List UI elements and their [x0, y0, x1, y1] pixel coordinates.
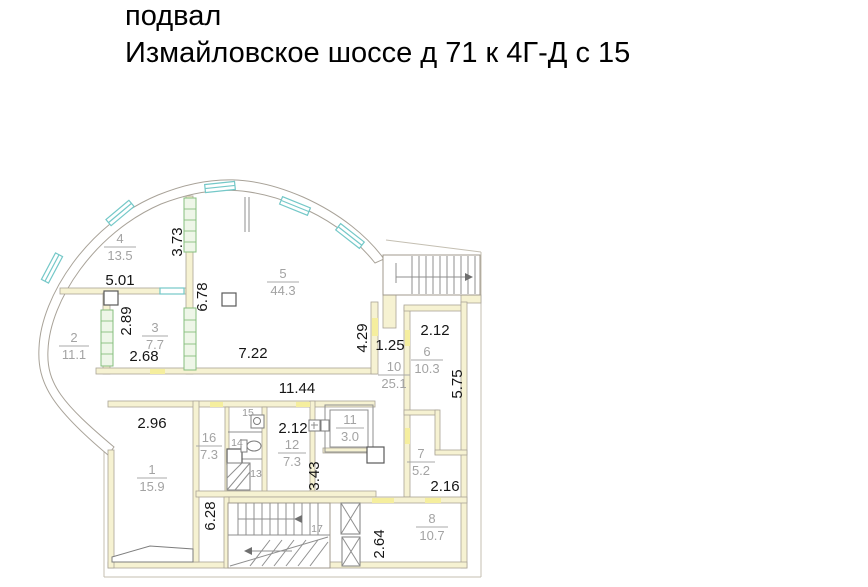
room-11-area: 3.0 — [341, 429, 359, 444]
room-12-number: 12 — [285, 437, 299, 452]
room-8-area: 10.7 — [419, 528, 444, 543]
room-6-area: 10.3 — [414, 361, 439, 376]
room-7-area: 5.2 — [412, 463, 430, 478]
room-5-area: 44.3 — [270, 283, 295, 298]
page: подвал Измайловское шоссе д 71 к 4Г-Д с … — [0, 0, 868, 587]
dim-6-28: 6.28 — [202, 501, 219, 530]
room-17-number: 17 — [311, 523, 323, 535]
dim-5-01: 5.01 — [105, 272, 134, 289]
floor-label: подвал — [125, 0, 630, 35]
dim-7-22: 7.22 — [238, 345, 267, 362]
dim-2-12-top: 2.12 — [420, 322, 449, 339]
room-16-area: 7.3 — [200, 447, 218, 462]
room-16-number: 16 — [202, 430, 216, 445]
curved-outer-wall — [39, 180, 384, 455]
dim-4-29: 4.29 — [354, 323, 371, 352]
dim-6-78: 6.78 — [194, 282, 211, 311]
dim-2-89: 2.89 — [118, 306, 135, 335]
staircase-top — [383, 255, 480, 295]
room-4-number: 4 — [116, 231, 123, 246]
staircase-17 — [228, 503, 330, 568]
dim-1-25: 1.25 — [375, 337, 404, 354]
room-11-number: 11 — [343, 412, 357, 427]
dim-2-68: 2.68 — [129, 348, 158, 365]
room-10-number: 10 — [387, 359, 401, 374]
room-8-number: 8 — [428, 511, 435, 526]
dim-5-75: 5.75 — [449, 369, 466, 398]
dim-3-73: 3.73 — [169, 227, 186, 256]
room-14-number: 14 — [231, 437, 243, 449]
floor-plan-svg: 1 15.9 2 11.1 3 7.7 4 13.5 5 44.3 6 10.3… — [30, 150, 485, 582]
dim-3-43: 3.43 — [306, 461, 323, 490]
room-2-number: 2 — [70, 330, 77, 345]
elevator-shafts — [341, 503, 360, 566]
plan-title: подвал Измайловское шоссе д 71 к 4Г-Д с … — [125, 0, 630, 72]
dim-2-16: 2.16 — [430, 478, 459, 495]
room-15-number: 15 — [242, 407, 254, 419]
dim-11-44: 11.44 — [279, 380, 315, 397]
arc-windows — [41, 181, 364, 283]
room-10-area: 25.1 — [381, 376, 406, 391]
address-label: Измайловское шоссе д 71 к 4Г-Д с 15 — [125, 35, 630, 72]
room-3-number: 3 — [151, 320, 158, 335]
dim-2-96: 2.96 — [137, 415, 166, 432]
wall-window — [160, 288, 184, 294]
room-12-area: 7.3 — [283, 454, 301, 469]
room-7-number: 7 — [417, 446, 424, 461]
room-2-area: 11.1 — [62, 347, 86, 362]
dim-2-64: 2.64 — [371, 529, 388, 558]
room-4-area: 13.5 — [107, 248, 132, 263]
room-1-number: 1 — [148, 462, 155, 477]
room-1-area: 15.9 — [139, 479, 164, 494]
room-6-number: 6 — [423, 344, 430, 359]
room-13-number: 13 — [250, 468, 262, 480]
dim-2-12-mid: 2.12 — [278, 420, 307, 437]
room-5-number: 5 — [279, 266, 286, 281]
ramp — [112, 546, 193, 562]
